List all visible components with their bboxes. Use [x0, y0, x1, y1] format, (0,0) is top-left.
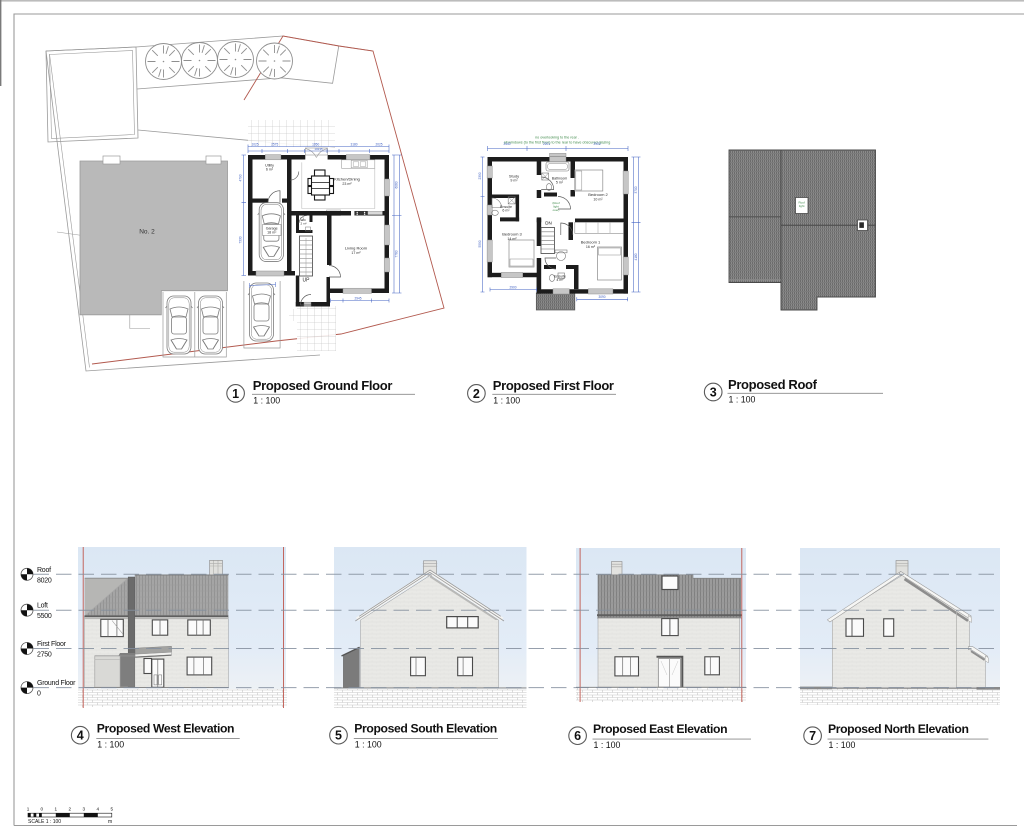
svg-text:1 : 100: 1 : 100: [493, 395, 520, 405]
svg-text:2: 2: [69, 807, 72, 812]
svg-text:4: 4: [77, 729, 84, 743]
svg-text:Ground Floor: Ground Floor: [37, 680, 76, 687]
svg-text:Roof: Roof: [37, 567, 51, 574]
svg-text:1: 1: [55, 807, 58, 812]
svg-text:DN: DN: [545, 221, 552, 226]
svg-text:Kitchen/Dining: Kitchen/Dining: [334, 177, 360, 182]
svg-text:2900: 2900: [509, 285, 516, 289]
svg-text:light: light: [799, 204, 805, 208]
svg-text:2945: 2945: [354, 296, 361, 300]
svg-text:6060: 6060: [395, 181, 399, 188]
svg-text:2: 2: [473, 387, 480, 401]
svg-text:2440: 2440: [503, 142, 510, 146]
svg-text:5 m²: 5 m²: [556, 181, 564, 185]
svg-text:7: 7: [809, 729, 816, 743]
svg-text:2575: 2575: [271, 142, 278, 146]
svg-text:17 m²: 17 m²: [351, 251, 361, 255]
svg-text:5: 5: [111, 807, 114, 812]
svg-text:1 : 100: 1 : 100: [729, 394, 756, 404]
svg-text:over): over): [553, 208, 560, 212]
svg-text:4 m²: 4 m²: [556, 278, 564, 282]
svg-text:UP: UP: [303, 278, 311, 284]
svg-text:2390: 2390: [478, 172, 482, 179]
svg-text:1 : 100: 1 : 100: [253, 395, 280, 405]
svg-text:3: 3: [83, 807, 86, 812]
svg-text:3700: 3700: [634, 186, 638, 193]
svg-text:3180: 3180: [350, 142, 357, 146]
svg-text:7330: 7330: [239, 236, 243, 243]
svg-text:5500: 5500: [37, 613, 52, 620]
svg-text:6 m²: 6 m²: [266, 168, 274, 172]
svg-text:Bedroom 3: Bedroom 3: [502, 232, 522, 237]
svg-text:Proposed East Elevation: Proposed East Elevation: [593, 722, 727, 736]
svg-text:5: 5: [335, 729, 342, 743]
svg-text:Bedroom 2: Bedroom 2: [588, 192, 608, 197]
svg-text:10235: 10235: [314, 147, 323, 151]
svg-text:7760: 7760: [395, 250, 399, 257]
svg-text:3090: 3090: [598, 295, 605, 299]
svg-text:Living Room: Living Room: [345, 246, 368, 251]
svg-text:4180: 4180: [634, 253, 638, 260]
svg-text:1 : 100: 1 : 100: [594, 740, 621, 750]
svg-text:18 m²: 18 m²: [267, 231, 277, 235]
svg-text:9 m²: 9 m²: [510, 179, 518, 183]
svg-text:Loft: Loft: [37, 603, 48, 610]
svg-text:1950: 1950: [312, 142, 319, 146]
svg-text:SCALE 1 : 100: SCALE 1 : 100: [28, 819, 61, 825]
svg-text:3: 3: [710, 386, 717, 400]
svg-text:2750: 2750: [37, 652, 52, 659]
svg-text:14 m²: 14 m²: [507, 237, 517, 241]
svg-text:1 : 100: 1 : 100: [97, 740, 124, 750]
svg-text:8020: 8020: [37, 577, 52, 584]
svg-text:6: 6: [574, 729, 581, 743]
svg-text:Proposed Roof: Proposed Roof: [728, 377, 818, 392]
svg-text:Proposed First Floor: Proposed First Floor: [493, 378, 614, 393]
svg-text:1: 1: [27, 807, 30, 812]
svg-text:2900: 2900: [593, 142, 600, 146]
svg-text:m: m: [108, 819, 112, 825]
svg-text:23 m²: 23 m²: [342, 182, 352, 186]
svg-text:2025: 2025: [375, 142, 382, 146]
svg-text:4790: 4790: [239, 174, 243, 181]
svg-text:Proposed South Elevation: Proposed South Elevation: [354, 721, 497, 735]
svg-text:no overlooking to the rear .: no overlooking to the rear .: [535, 136, 579, 140]
svg-text:0: 0: [41, 807, 44, 812]
svg-text:1 : 100: 1 : 100: [829, 740, 856, 750]
svg-text:4: 4: [97, 807, 100, 812]
svg-text:5590: 5590: [478, 240, 482, 247]
svg-text:16 m²: 16 m²: [586, 245, 596, 249]
svg-text:1: 1: [232, 387, 239, 401]
svg-text:2 m²: 2 m²: [301, 222, 307, 226]
svg-text:Proposed North Elevation: Proposed North Elevation: [828, 722, 969, 736]
svg-text:1 : 100: 1 : 100: [355, 740, 382, 750]
svg-text:0: 0: [37, 691, 41, 698]
svg-text:6 m²: 6 m²: [502, 209, 510, 213]
svg-text:Bedroom 1: Bedroom 1: [581, 240, 601, 245]
svg-text:No. 2: No. 2: [139, 229, 155, 236]
svg-text:2201: 2201: [543, 142, 550, 146]
svg-text:Proposed Ground Floor: Proposed Ground Floor: [253, 378, 393, 393]
svg-text:Proposed West Elevation: Proposed West Elevation: [97, 721, 234, 735]
svg-text:10 m²: 10 m²: [593, 198, 603, 202]
svg-text:First Floor: First Floor: [37, 641, 67, 648]
svg-text:1025: 1025: [251, 142, 258, 146]
